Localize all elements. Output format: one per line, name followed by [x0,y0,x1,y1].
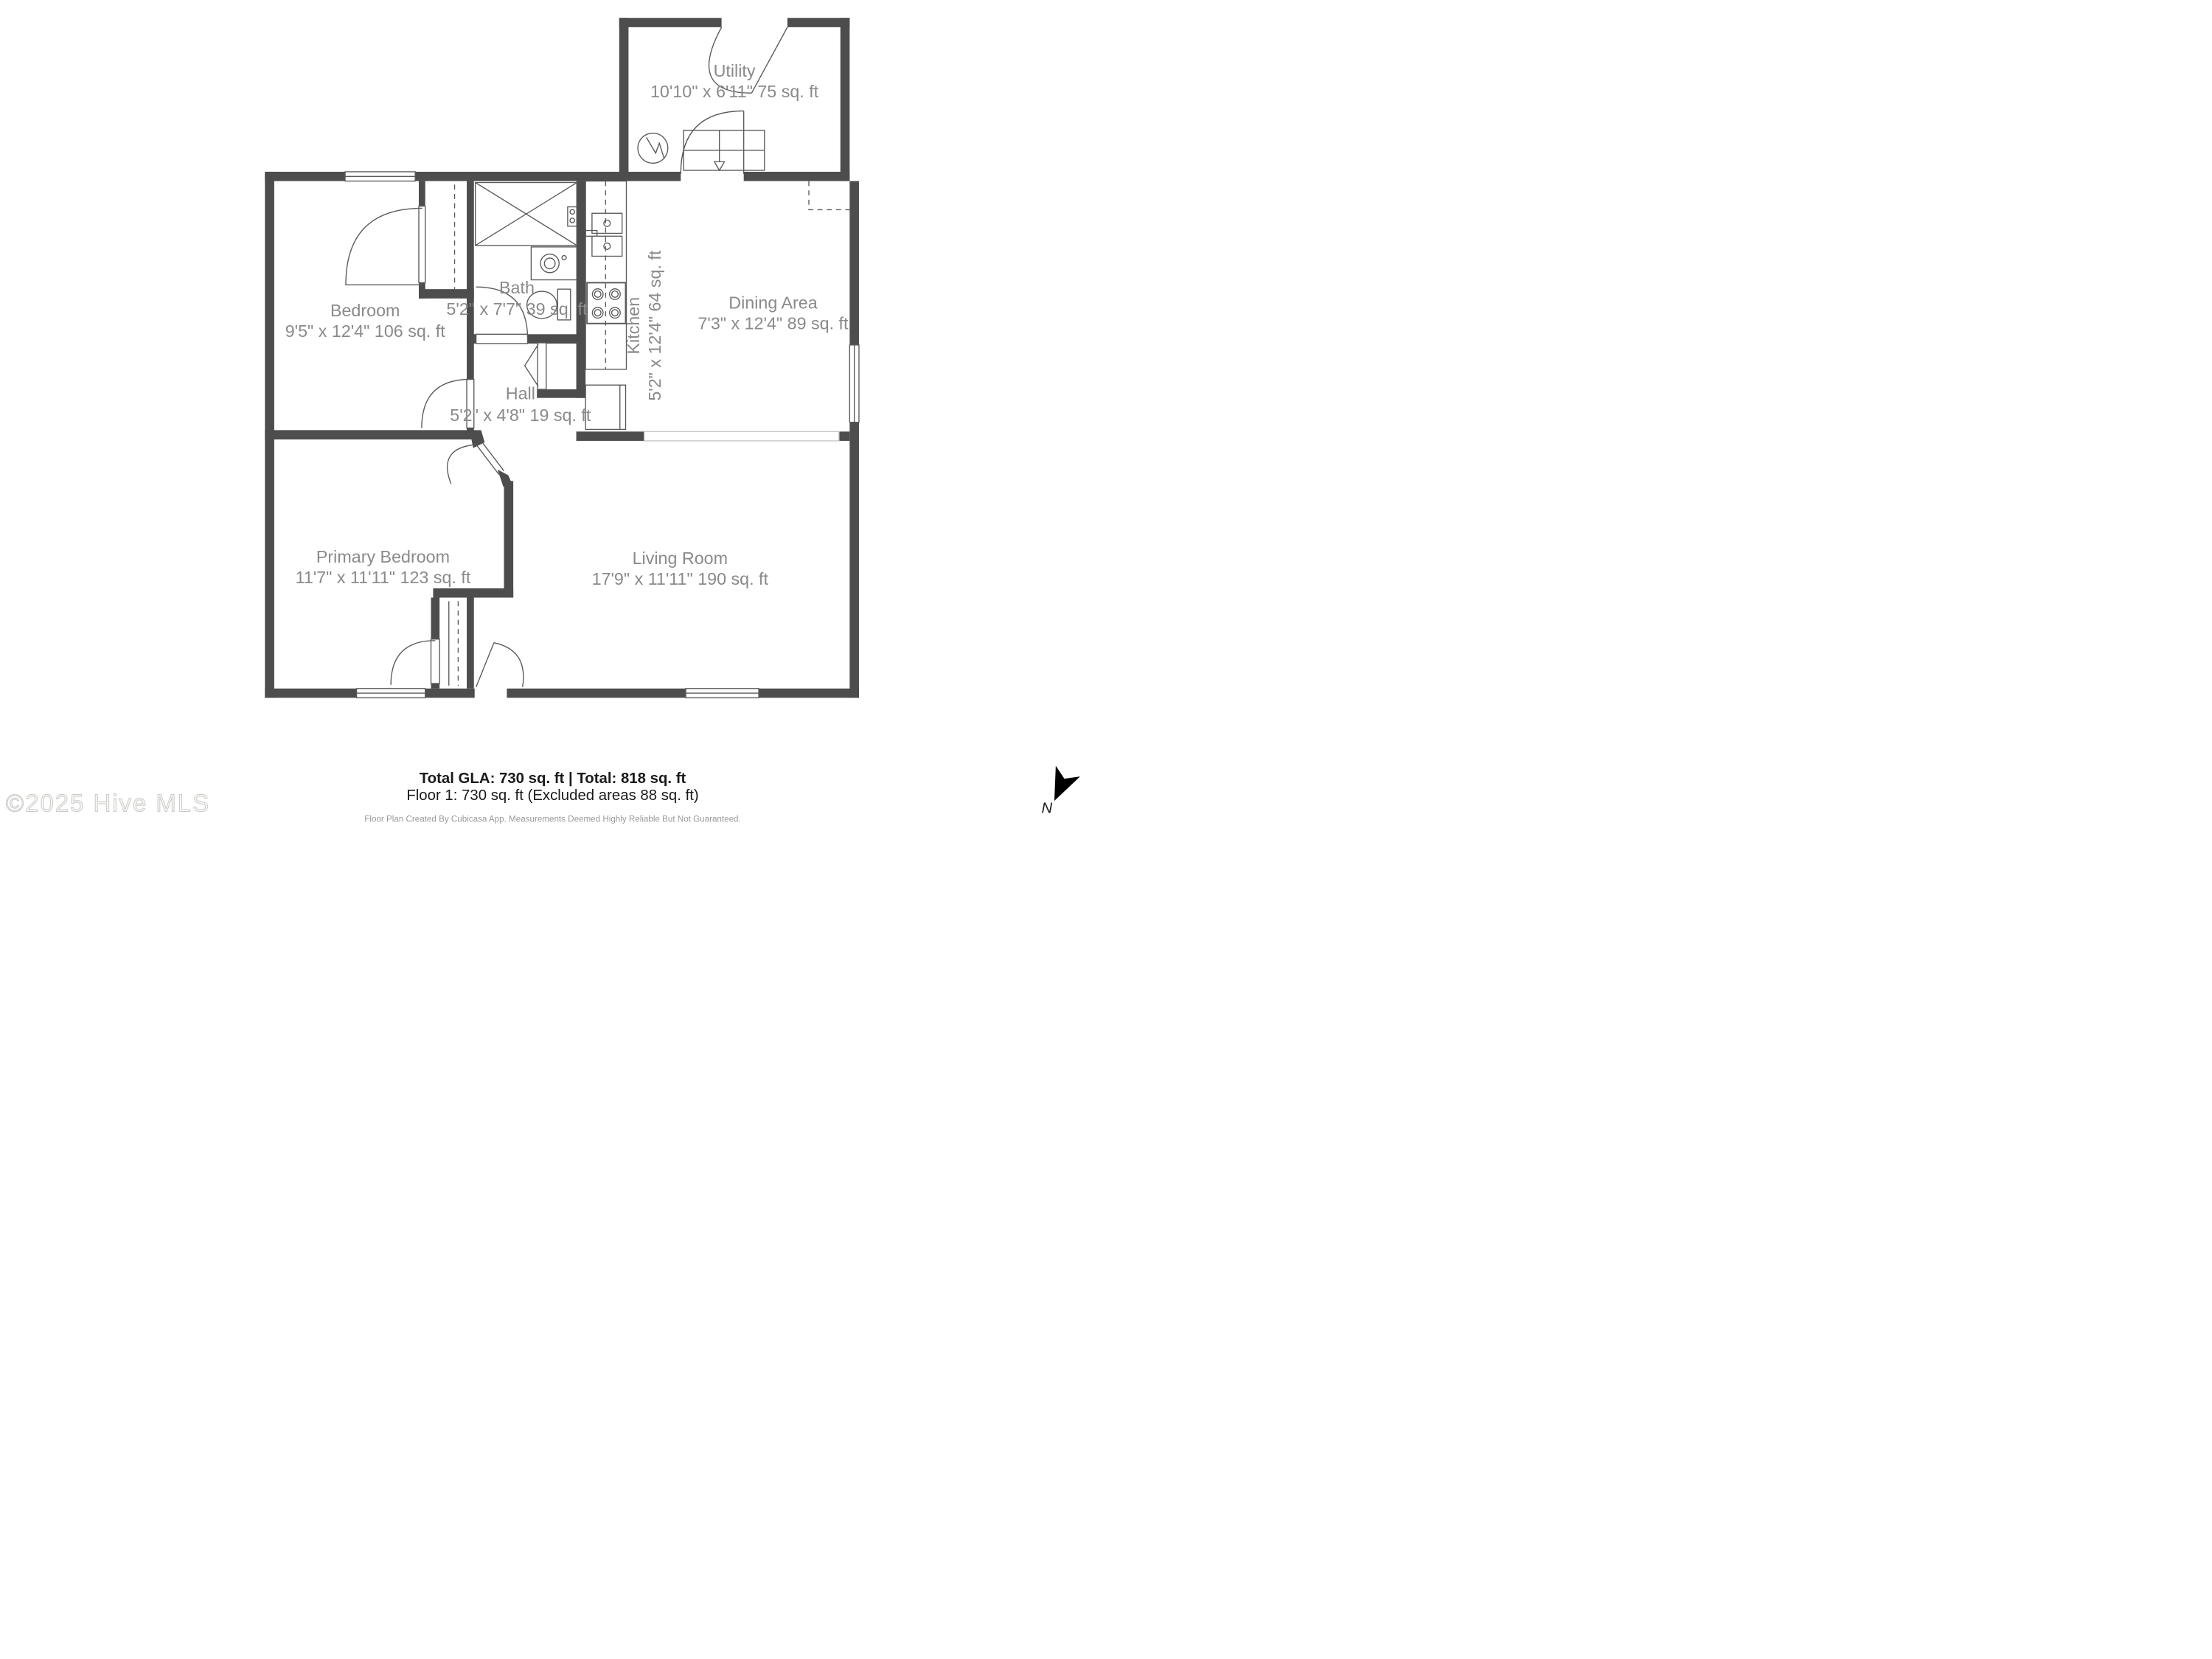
room-name: Primary Bedroom [316,547,450,566]
wall [433,588,513,598]
room-name: Kitchen [624,297,643,355]
window [849,345,859,422]
wall [619,18,629,181]
room-label-kitchen: Kitchen 5'2" x 12'4" 64 sq. ft [624,250,664,401]
window [357,689,425,698]
wall [265,172,628,181]
wall [537,389,585,398]
room-name: Hall [506,384,535,403]
room-name: Living Room [633,549,728,568]
room-dims: 11'7" x 11'11" 123 sq. ft [296,568,471,587]
window [686,689,759,698]
footer-totals: Total GLA: 730 sq. ft | Total: 818 sq. f… [420,771,686,787]
wall [849,181,859,698]
room-label-dining-area: Dining Area 7'3" x 12'4" 89 sq. ft [698,293,849,333]
window [345,172,415,181]
door-primary-closet [391,639,439,685]
wall [431,684,440,689]
wall [467,598,474,689]
room-dims: 9'5" x 12'4" 106 sq. ft [285,321,446,341]
wall [419,289,474,299]
bifold-door-icon [525,343,546,389]
room-dims: 5'2" x 12'4" 64 sq. ft [645,250,664,401]
floor-plan-canvas: Utility 10'10" x 6'11" 75 sq. ft Bedroom… [0,0,1106,829]
wall [504,481,514,597]
room-name: Utility [714,61,756,80]
room-label-primary-bedroom: Primary Bedroom 11'7" x 11'11" 123 sq. f… [296,547,471,587]
wall [431,598,440,639]
walls [265,18,859,698]
upper-cabinet-dashed [809,181,849,210]
wall [577,181,586,398]
room-label-bedroom: Bedroom 9'5" x 12'4" 106 sq. ft [285,301,446,341]
stove-icon [587,282,625,323]
footer-floor1: Floor 1: 730 sq. ft (Excluded areas 88 s… [406,787,698,804]
wall [787,18,849,27]
north-indicator: N [1041,766,1079,817]
washer-dryer-icon [684,131,765,170]
closet-rail [449,601,459,686]
watermark: ©2025 Hive MLS [6,790,210,817]
room-label-living-room: Living Room 17'9" x 11'11" 190 sq. ft [592,549,769,588]
door-primary-bedroom [448,441,504,484]
wall [744,172,850,181]
wall [507,689,859,698]
room-dims: 10'10" x 6'11" 75 sq. ft [650,82,819,101]
kitchen-sink-icon [585,213,622,256]
wall [841,18,850,181]
room-dims: 5'2" x 4'8" 19 sq. ft [450,406,591,425]
door-front-entry [476,643,524,687]
water-heater-icon [638,133,668,164]
wall [467,181,474,380]
room-name: Bedroom [330,301,400,320]
wall [577,431,644,441]
room-dims: 5'2" x 7'7" 39 sq. ft [446,299,588,319]
wall [619,18,722,27]
watermark-text: ©2025 Hive MLS [6,790,210,817]
kitchen-counter [585,181,626,369]
door-bedroom-closet [346,206,425,285]
footer: Total GLA: 730 sq. ft | Total: 818 sq. f… [364,771,740,824]
fridge-icon [585,385,625,429]
shower-icon [476,183,577,246]
wall [265,430,470,439]
room-dims: 17'9" x 11'11" 190 sq. ft [592,569,769,588]
north-arrow-icon [1054,766,1080,801]
wall [839,431,850,441]
wall [419,181,425,206]
bath-sink-icon [531,247,577,280]
north-label: N [1041,801,1052,817]
footer-disclaimer: Floor Plan Created By Cubicasa App. Meas… [364,814,740,824]
room-label-utility: Utility 10'10" x 6'11" 75 sq. ft [650,61,819,101]
room-dims: 7'3" x 12'4" 89 sq. ft [698,314,849,333]
room-name: Dining Area [728,293,817,312]
wall [467,334,476,344]
door-utility-interior [681,111,743,173]
room-divider-line [644,431,839,441]
room-name: Bath [499,278,535,297]
